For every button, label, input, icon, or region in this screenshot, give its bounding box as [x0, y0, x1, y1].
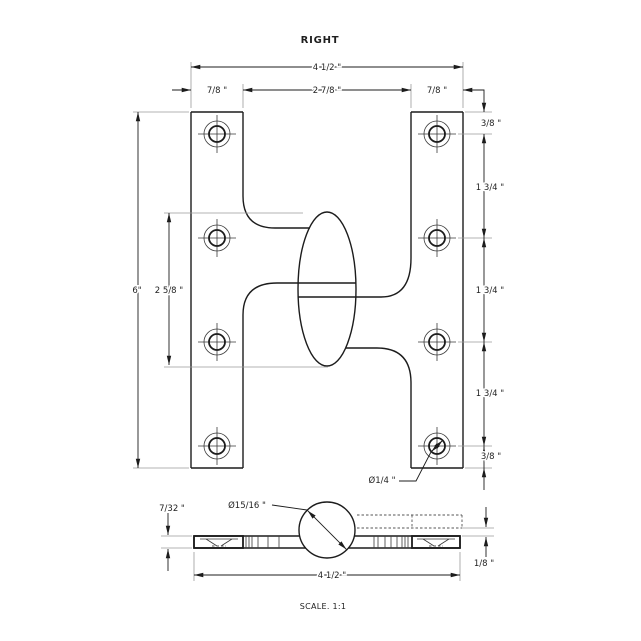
dim-knuckle-diameter-label: Ø15/16 ": [228, 500, 266, 511]
knuckle-diameter-line: [308, 511, 347, 550]
countersink-right: [417, 539, 455, 546]
dim-right-leaf-label: 7/8 ": [427, 86, 447, 96]
dim-leaf-offset-label: 1/8 ": [474, 559, 494, 569]
dim-bottom-total-width-label: 4 1/2 ": [318, 571, 346, 581]
dim-leaf-thickness-label: 7/32 ": [159, 504, 185, 514]
drawing-sheet: 4 1/2 " 7/8 " 2 7/8 " 7/8 " 3/8 " 1 3/4 …: [0, 0, 641, 641]
hidden-leaf-dashed: [357, 515, 462, 528]
screw-hole: [418, 219, 456, 257]
knuckle-wrap-lines-right: [374, 536, 408, 548]
leaf-bar-outline: [194, 536, 460, 548]
hinge-technical-drawing: 4 1/2 " 7/8 " 2 7/8 " 7/8 " 3/8 " 1 3/4 …: [0, 0, 641, 641]
hole-diameter-leader: [399, 452, 431, 481]
dim-top-margin-label: 3/8 ": [481, 119, 501, 129]
screw-hole: [198, 115, 236, 153]
dim-bottom-margin-label: 3/8 ": [481, 452, 501, 462]
dim-total-height-label: 6": [132, 286, 141, 296]
right-leaf-arm: [298, 258, 411, 383]
view-title: RIGHT: [301, 35, 340, 46]
dim-pitch-3-label: 1 3/4 ": [476, 389, 504, 399]
left-leaf-outline: [191, 112, 243, 468]
right-leaf-outline: [411, 112, 463, 468]
dim-pitch-2-label: 1 3/4 ": [476, 286, 504, 296]
dim-total-width-label: 4 1/2 ": [313, 63, 341, 73]
knuckle-diameter-leader: [272, 505, 307, 510]
olive-knuckle: [298, 212, 356, 366]
scale-note: SCALE. 1:1: [300, 602, 347, 611]
front-view: [191, 112, 463, 468]
bottom-view-dimensions: 7/32 " Ø15/16 " 4 1/2 " 1/8 ": [159, 500, 494, 581]
dim-left-leaf-label: 7/8 ": [207, 86, 227, 96]
screw-hole: [418, 115, 456, 153]
dim-gap-label: 2 7/8 ": [313, 86, 341, 96]
dim-hole-diameter-label: Ø1/4 ": [369, 475, 396, 486]
dim-hook-right-leaf: [463, 90, 484, 112]
knuckle-wrap-lines-left: [246, 536, 279, 548]
screw-hole: [418, 323, 456, 361]
front-view-dimensions: 4 1/2 " 7/8 " 2 7/8 " 7/8 " 3/8 " 1 3/4 …: [132, 62, 504, 490]
screw-hole: [198, 219, 236, 257]
screw-hole: [198, 427, 236, 465]
screw-hole: [198, 323, 236, 361]
extension-lines: [133, 62, 492, 468]
dim-knuckle-height-label: 2 5/8 ": [155, 286, 183, 296]
dim-pitch-1-label: 1 3/4 ": [476, 183, 504, 193]
countersink-left: [200, 539, 238, 546]
